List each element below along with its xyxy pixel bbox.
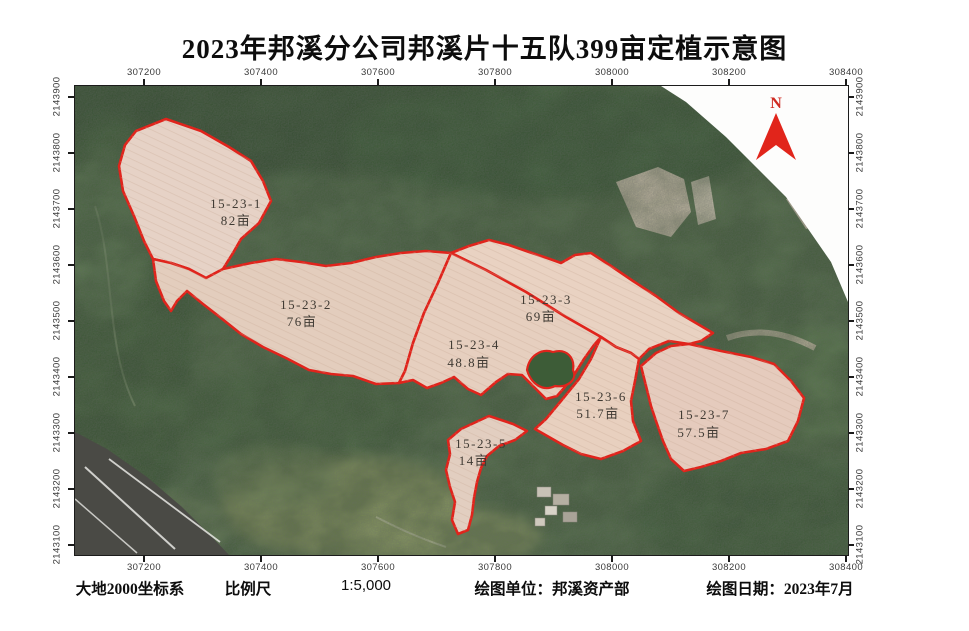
tick-mark (728, 79, 730, 85)
y-tick-label: 2143100 (855, 517, 866, 573)
y-tick-label: 2143500 (855, 293, 866, 349)
tick-mark (377, 79, 379, 85)
y-tick-label: 2143300 (855, 405, 866, 461)
parcel-id-label: 15-23-5 (455, 436, 507, 451)
tick-mark (260, 79, 262, 85)
tick-mark (143, 79, 145, 85)
x-tick-label: 308000 (584, 562, 640, 573)
tree-island (527, 351, 574, 388)
tick-mark (68, 208, 74, 210)
y-tick-label: 2143300 (52, 405, 63, 461)
y-tick-label: 2143700 (52, 181, 63, 237)
x-tick-label: 307400 (233, 562, 289, 573)
drawing-date-label: 绘图日期：2023年7月 (706, 577, 853, 599)
parcel-area-label: 69亩 (526, 309, 557, 324)
tick-mark (494, 79, 496, 85)
tick-mark (848, 320, 854, 322)
y-tick-label: 2143700 (855, 181, 866, 237)
y-tick-label: 2143200 (52, 461, 63, 517)
aerial-map: N 15-23-1 82亩 15-23-2 76亩 15-23-3 69亩 15… (75, 86, 848, 555)
parcel-id-label: 15-23-4 (448, 337, 500, 352)
x-tick-label: 308400 (818, 67, 874, 78)
parcel-id-label: 15-23-6 (575, 389, 627, 404)
parcel-area-label: 14亩 (459, 453, 490, 468)
tick-mark (848, 432, 854, 434)
y-tick-label: 2143900 (52, 69, 63, 125)
tick-mark (68, 544, 74, 546)
scale-value: 1:5,000 (341, 577, 391, 594)
y-tick-label: 2143800 (855, 125, 866, 181)
tick-mark (848, 488, 854, 490)
parcel-area-label: 82亩 (221, 213, 252, 228)
x-tick-label: 307200 (116, 562, 172, 573)
x-tick-label: 307800 (467, 67, 523, 78)
tick-mark (68, 152, 74, 154)
tick-mark (848, 152, 854, 154)
parcel-id-label: 15-23-7 (678, 407, 730, 422)
tick-mark (68, 488, 74, 490)
map-title: 2023年邦溪分公司邦溪片十五队399亩定植示意图 (0, 27, 969, 66)
tick-mark (611, 79, 613, 85)
tick-mark (68, 432, 74, 434)
scale-label: 比例尺 (225, 577, 272, 599)
map-frame: N 15-23-1 82亩 15-23-2 76亩 15-23-3 69亩 15… (74, 85, 849, 556)
y-tick-label: 2143400 (52, 349, 63, 405)
tick-mark (68, 376, 74, 378)
x-tick-label: 308200 (701, 562, 757, 573)
y-tick-label: 2143500 (52, 293, 63, 349)
x-tick-label: 307200 (116, 67, 172, 78)
y-tick-label: 2143600 (52, 237, 63, 293)
x-tick-label: 308200 (701, 67, 757, 78)
tick-mark (848, 544, 854, 546)
north-label: N (770, 95, 782, 112)
tick-mark (848, 264, 854, 266)
y-tick-label: 2143900 (855, 69, 866, 125)
x-tick-label: 307600 (350, 67, 406, 78)
parcel-area-label: 76亩 (287, 314, 318, 329)
tick-mark (68, 264, 74, 266)
tick-mark (848, 376, 854, 378)
tick-mark (68, 320, 74, 322)
tick-mark (845, 79, 847, 85)
parcel-area-label: 48.8亩 (447, 355, 490, 370)
coordinate-system-label: 大地2000坐标系 (76, 577, 185, 599)
y-tick-label: 2143800 (52, 125, 63, 181)
parcel-area-label: 57.5亩 (677, 425, 720, 440)
x-tick-label: 308400 (818, 562, 874, 573)
tick-mark (848, 96, 854, 98)
parcel-area-label: 51.7亩 (576, 406, 619, 421)
parcel-id-label: 15-23-2 (280, 297, 332, 312)
tick-mark (68, 96, 74, 98)
parcel-id-label: 15-23-1 (210, 196, 262, 211)
x-tick-label: 307800 (467, 562, 523, 573)
map-sheet: 2023年邦溪分公司邦溪片十五队399亩定植示意图 (0, 0, 969, 631)
drawing-unit-label: 绘图单位：邦溪资产部 (474, 577, 629, 599)
y-tick-label: 2143100 (52, 517, 63, 573)
x-tick-label: 308000 (584, 67, 640, 78)
y-tick-label: 2143200 (855, 461, 866, 517)
y-tick-label: 2143600 (855, 237, 866, 293)
x-tick-label: 307600 (350, 562, 406, 573)
parcel-id-label: 15-23-3 (520, 292, 572, 307)
tick-mark (848, 208, 854, 210)
x-tick-label: 307400 (233, 67, 289, 78)
y-tick-label: 2143400 (855, 349, 866, 405)
